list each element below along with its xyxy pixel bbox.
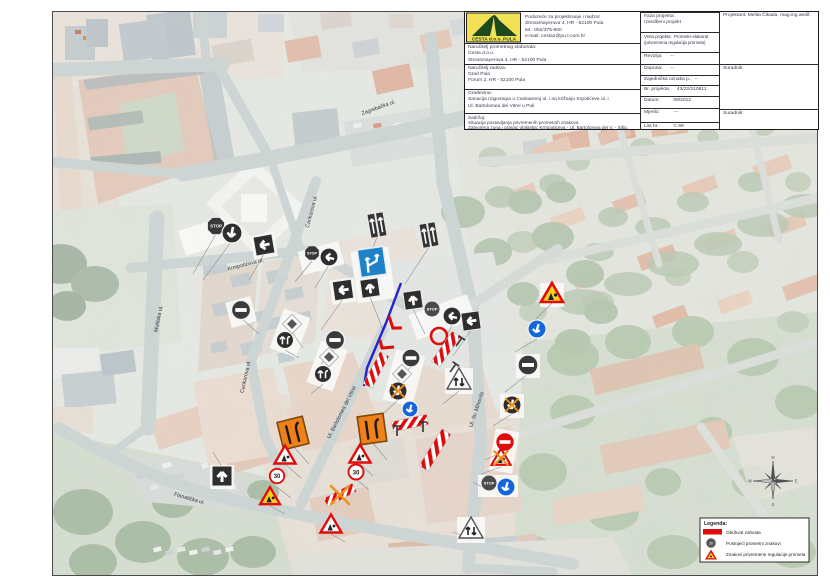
svg-text:Znakovi privremene regulacije: Znakovi privremene regulacije prometa	[726, 552, 806, 557]
svg-text:W: W	[748, 479, 752, 484]
svg-text:CESTA d.o.o. PULA: CESTA d.o.o. PULA	[472, 37, 517, 43]
svg-text:30: 30	[709, 542, 713, 546]
svg-text:N: N	[771, 455, 774, 460]
svg-text:E: E	[795, 479, 798, 484]
svg-text:Legenda:: Legenda:	[704, 521, 727, 527]
svg-text:Postojeći prometni znakovi: Postojeći prometni znakovi	[726, 541, 781, 546]
svg-text:Obuhvat zahvata: Obuhvat zahvata	[726, 530, 761, 535]
svg-text:S: S	[772, 502, 775, 507]
